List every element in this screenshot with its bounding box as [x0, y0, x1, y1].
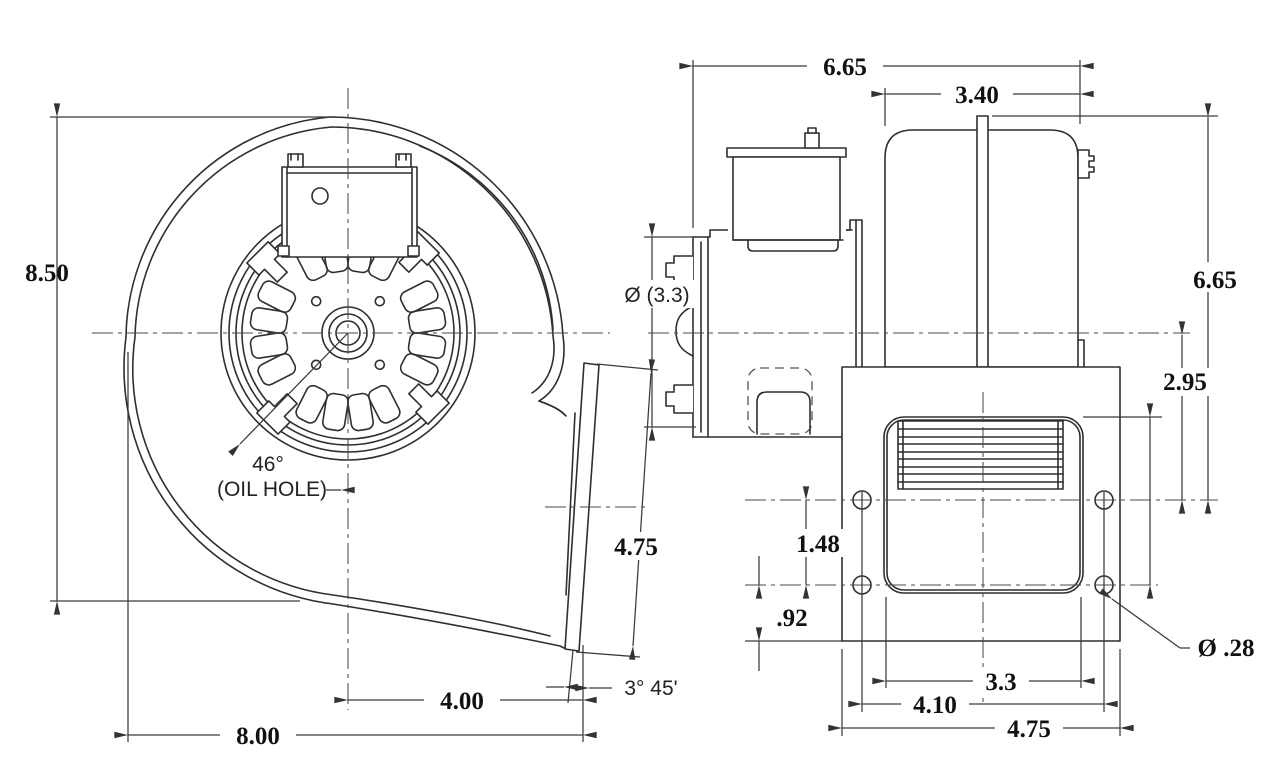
dim-side-inlet-diameter: Ø (3.3)	[624, 284, 689, 307]
junction-box	[727, 128, 846, 252]
motor-strap-clamp	[1078, 150, 1094, 178]
housing-outline-upper	[330, 117, 566, 416]
dim-front-overall-height: 8.50	[25, 260, 69, 287]
dim-side-overall-height: 6.65	[1193, 267, 1237, 294]
side-view-blower-assembly	[666, 116, 1120, 641]
label-flange-angle: 3° 45'	[624, 677, 677, 700]
drawing-canvas: 8.50 8.00 4.00 46° (OIL HOLE) 4.75 3° 45…	[0, 0, 1280, 784]
dim-side-holes-to-base: .92	[776, 605, 807, 632]
dim-side-motor-depth: 3.40	[955, 82, 999, 109]
front-view-scroll-housing	[124, 117, 599, 651]
oil-hole-leader	[240, 333, 348, 444]
motor-side	[885, 116, 1094, 367]
volute-inner-arc	[420, 146, 553, 330]
dim-front-flange-length: 4.75	[614, 534, 658, 561]
inlet-clip-upper	[666, 256, 693, 284]
junction-box-lid	[727, 148, 846, 157]
inlet-clip-lower	[666, 385, 693, 413]
outlet-mount-flange-face	[842, 367, 1120, 641]
dim-front-center-to-outlet: 4.00	[440, 688, 484, 715]
dim-side-hole-span: 4.10	[913, 692, 957, 719]
dim-side-hole-row-spacing: 1.48	[796, 531, 840, 558]
dim-side-outlet-width: 3.3	[985, 669, 1016, 696]
inlet-lip	[676, 306, 693, 356]
dim-side-overall-depth: 6.65	[823, 54, 867, 81]
dim-side-flange-width: 4.75	[1007, 716, 1051, 743]
label-oil-hole-note: (OIL HOLE)	[217, 478, 327, 501]
conduit-nut	[805, 133, 819, 148]
dim-front-overall-width: 8.00	[236, 723, 280, 750]
blower-dimensional-drawing: 8.50 8.00 4.00 46° (OIL HOLE) 4.75 3° 45…	[0, 0, 1280, 784]
dim-side-hole-diameter: Ø .28	[1198, 635, 1255, 662]
label-oil-hole-angle: 46°	[252, 453, 284, 476]
dim-side-center-to-holes: 2.95	[1163, 369, 1207, 396]
motor-strap	[977, 116, 988, 367]
foot-tab	[757, 392, 810, 434]
